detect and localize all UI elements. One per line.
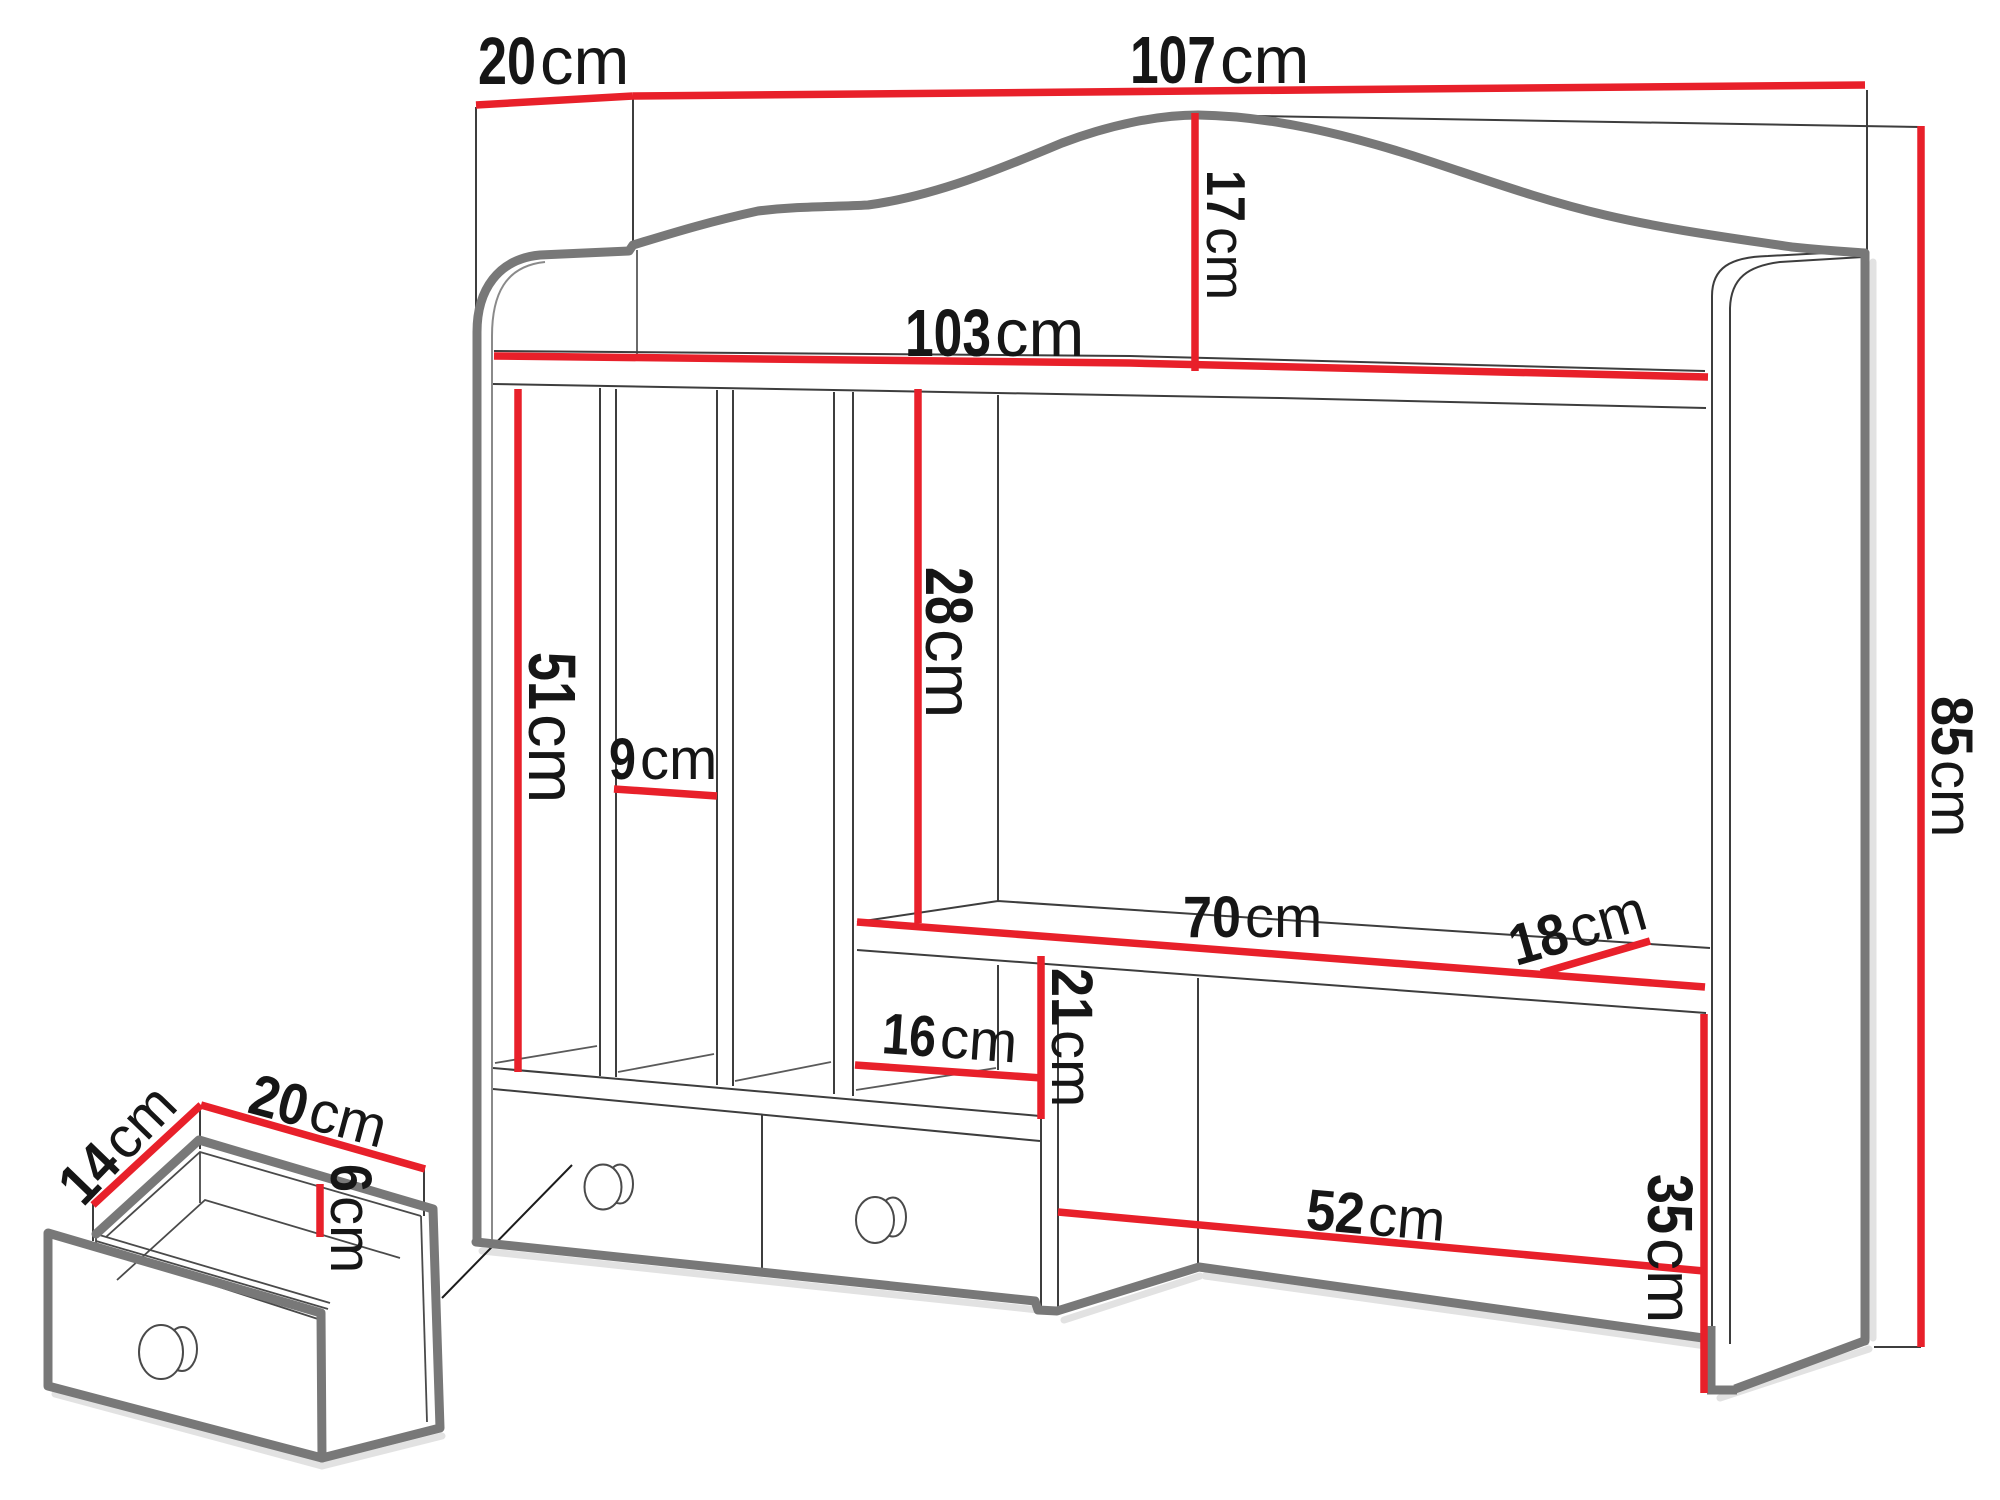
svg-text:70: 70 (1183, 885, 1241, 950)
svg-text:cm: cm (1634, 1238, 1706, 1323)
svg-text:cm: cm (303, 1078, 395, 1161)
svg-text:28: 28 (911, 567, 986, 625)
svg-text:cm: cm (1220, 23, 1309, 98)
svg-text:17: 17 (1195, 170, 1257, 222)
svg-text:35: 35 (1634, 1174, 1706, 1234)
svg-text:cm: cm (1195, 227, 1257, 300)
svg-text:cm: cm (1561, 878, 1653, 962)
svg-text:cm: cm (1245, 885, 1322, 950)
svg-text:20: 20 (478, 24, 536, 99)
svg-text:cm: cm (1039, 1030, 1104, 1107)
svg-text:51: 51 (514, 652, 589, 710)
svg-text:cm: cm (640, 727, 717, 792)
svg-text:107: 107 (1130, 23, 1216, 98)
svg-text:cm: cm (995, 296, 1084, 371)
svg-text:cm: cm (911, 629, 986, 718)
svg-text:cm: cm (318, 1196, 383, 1273)
svg-text:103: 103 (905, 296, 991, 371)
svg-text:20: 20 (243, 1062, 316, 1140)
svg-text:9: 9 (609, 727, 636, 792)
svg-text:cm: cm (540, 24, 629, 99)
svg-text:52: 52 (1304, 1177, 1367, 1247)
svg-text:cm: cm (1366, 1183, 1449, 1254)
svg-text:85: 85 (1919, 696, 1984, 756)
svg-text:21: 21 (1039, 968, 1104, 1026)
svg-text:cm: cm (938, 1005, 1020, 1075)
svg-text:6: 6 (318, 1164, 383, 1192)
svg-text:16: 16 (880, 1001, 938, 1070)
svg-text:cm: cm (1919, 760, 1984, 837)
svg-text:cm: cm (514, 714, 589, 803)
